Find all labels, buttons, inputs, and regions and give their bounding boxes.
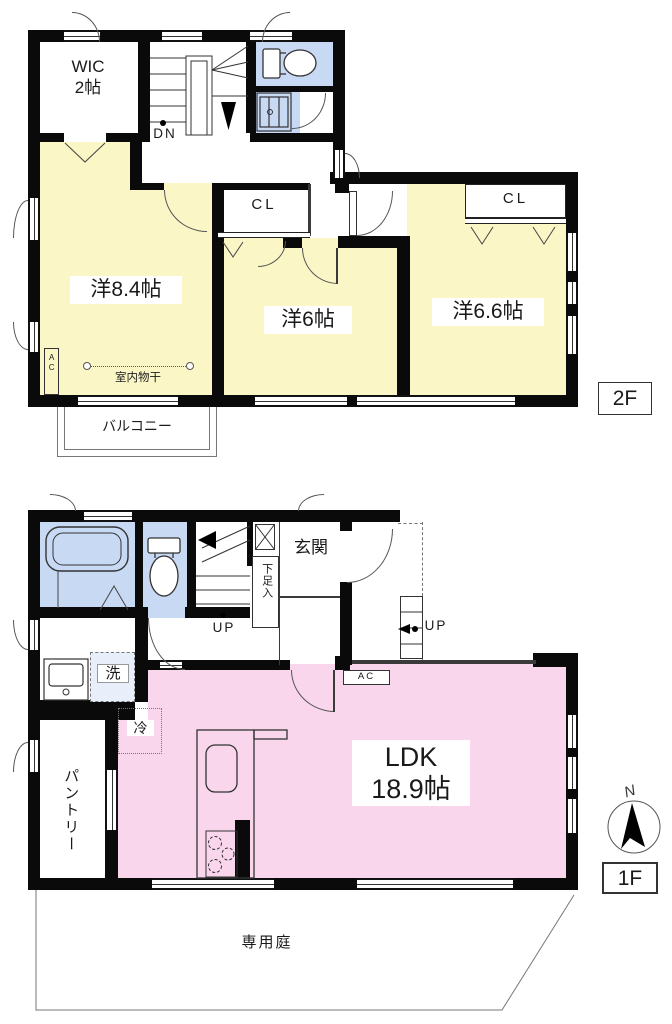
window-2f-right-a <box>566 233 578 271</box>
porch-up-arrow <box>398 624 410 634</box>
wall-wic-bottom-b <box>106 133 150 142</box>
window-arc-1f-left-a <box>13 620 28 650</box>
closet-mid-label: CL <box>218 196 310 213</box>
wall-84-right <box>212 183 224 395</box>
room-6-label: 洋6帖 <box>264 306 352 334</box>
wall-wic-bottom-a <box>40 133 64 142</box>
porch-up-label: UP <box>420 618 452 634</box>
hanger-v-closet-right-b <box>532 226 556 245</box>
compass-north-label: N <box>622 782 638 802</box>
window-arc-genkan-top <box>298 494 324 511</box>
wall-ldk-corner <box>533 653 578 667</box>
washbasin-icon-2f <box>256 92 292 132</box>
wall-hall-ldk-b <box>182 660 290 670</box>
drying-hook-left <box>83 362 91 370</box>
ac-unit-1f: AC <box>343 670 390 685</box>
ac-unit-1f-label: AC <box>344 672 389 683</box>
wall-ldk-top-thin <box>340 660 536 664</box>
window-2f-bottom-mid <box>255 395 347 407</box>
ac-unit-2f-label: AC <box>47 353 56 373</box>
fridge-label: 冷 <box>127 720 154 736</box>
balcony-label: バルコニー <box>85 418 189 434</box>
wic-label-line2: 2帖 <box>44 77 132 98</box>
closet-front-mid <box>218 232 310 238</box>
staircase-1f <box>196 522 250 618</box>
window-2f-balcony-door <box>78 395 178 407</box>
bathtub-icon <box>44 524 132 614</box>
wic-label-line1: WIC <box>44 56 132 77</box>
window-arc-1f-left-b <box>13 742 28 772</box>
door-leaf-ldk <box>333 670 335 712</box>
door-v-mark-wic <box>64 142 106 164</box>
door-arc-washbasin-2f <box>292 93 326 129</box>
window-2f-left-b <box>28 322 40 352</box>
indoor-drying-label: 室内物干 <box>96 372 180 385</box>
wic-label: WIC 2帖 <box>44 56 132 98</box>
shoe-cabinet-label: 下足入 <box>260 563 273 599</box>
indoor-drying-line <box>88 366 190 367</box>
window-arc-2f-left-b <box>13 322 28 350</box>
compass: N <box>600 776 668 856</box>
window-1f-right-c <box>566 799 578 833</box>
ldk-label-line1: LDK <box>352 741 470 773</box>
ldk-label: LDK 18.9帖 <box>352 740 470 806</box>
drying-hook-right <box>186 362 194 370</box>
hanger-v-closet-right-a <box>470 226 494 245</box>
porch-dash-top <box>398 523 423 524</box>
door-arc-toilet-2f <box>262 12 290 42</box>
floor-2f-badge-label: 2F <box>599 387 651 411</box>
shoe-cabinet: 下足入 <box>252 556 279 628</box>
ldk-label-line2: 18.9帖 <box>352 773 470 805</box>
wall-washroom-right <box>135 618 148 702</box>
window-1f-right-b <box>566 757 578 789</box>
stairs-up-label: UP <box>206 620 242 636</box>
window-1f-left-washroom <box>28 620 40 650</box>
wall-corridor-south-b <box>338 236 400 248</box>
genkan-step-line <box>280 596 340 598</box>
wall-wic-stairs <box>138 42 150 133</box>
shoe-column-divider <box>279 522 280 665</box>
room-66-label: 洋6.6帖 <box>432 298 544 326</box>
wall-corner-stub-2f <box>335 184 349 193</box>
window-2f-hall-east <box>333 150 345 178</box>
door-arc-wic <box>72 12 100 42</box>
closet-front-right <box>465 218 566 224</box>
wall-washbasin-bottom <box>250 133 333 142</box>
window-2f-right-c <box>566 316 578 354</box>
floor-plan-canvas: AC 室内物干 バルコニー WIC 2帖 DN CL CL 洋8.4帖 洋6帖 … <box>0 0 672 1024</box>
window-arc-2f-left-a <box>13 200 28 238</box>
window-1f-left-pantry <box>28 740 40 772</box>
window-1f-top <box>84 510 132 522</box>
pantry-sliding-door <box>105 770 118 830</box>
room-84-label: 洋8.4帖 <box>70 276 182 304</box>
laundry-label: 洗 <box>97 664 129 683</box>
entrance-label: 玄関 <box>282 538 340 558</box>
window-arc-bath-top <box>50 494 76 511</box>
closet-right-label: CL <box>465 190 566 207</box>
wall-cl-mid-top <box>212 183 310 190</box>
stairs-dn-label: DN <box>146 126 184 142</box>
hanger-v-closet-mid <box>222 241 244 258</box>
kitchen-counter <box>196 728 288 880</box>
wall-2f-right-section-top <box>330 172 578 184</box>
wall-genkan-right-bottom <box>340 582 352 665</box>
private-garden-outline <box>28 885 668 1024</box>
pantry-label: パントリー <box>62 750 79 870</box>
door-leaf-bedroom-66 <box>349 191 357 236</box>
wall-divider-6-66 <box>397 236 410 396</box>
ac-unit-2f: AC <box>44 348 59 395</box>
window-arc-hall-east <box>345 153 360 178</box>
floor-2f-badge: 2F <box>598 382 652 415</box>
wall-pantry-right-a <box>105 720 118 770</box>
garden-label: 専用庭 <box>222 934 312 951</box>
wall-hall-ldk-a <box>148 660 160 670</box>
wall-hall-notch-bottom <box>130 183 164 190</box>
wall-bath-toilet <box>135 522 143 607</box>
wall-pantry-right-b <box>105 830 118 878</box>
window-1f-right-a <box>566 715 578 748</box>
porch-up-dot <box>412 626 418 632</box>
cross-box-icon <box>255 524 275 550</box>
toilet-icon-2f <box>260 45 332 83</box>
door-leaf-bedroom-6 <box>336 248 338 284</box>
window-2f-right-b <box>566 282 578 304</box>
wall-toilet-stairs <box>187 510 196 618</box>
staircase-2f <box>150 42 248 135</box>
washbasin-icon-1f <box>42 656 90 702</box>
window-2f-left-a <box>28 198 40 240</box>
toilet-icon-1f <box>145 536 185 602</box>
window-2f-bottom-right <box>357 395 515 407</box>
window-2f-top-stairs <box>162 30 202 42</box>
